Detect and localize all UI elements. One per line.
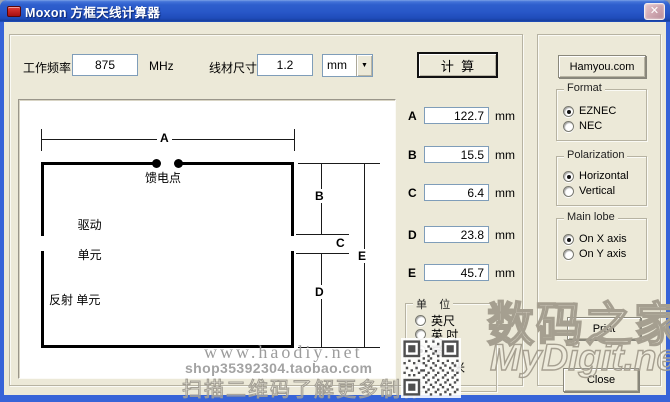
result-unit-d: mm [495,228,515,242]
result-label-c: C [408,186,417,200]
unit-option-label: 毫 米 [431,342,458,359]
format-option-nec[interactable]: NEC [563,120,602,132]
polarization-option-horizontal[interactable]: Horizontal [563,170,629,182]
result-label-d: D [408,228,417,242]
wire-size-label: 线材尺寸 [209,59,257,76]
main-lobe-option-label: On Y axis [579,248,626,260]
polarization-option-label: Horizontal [579,170,629,182]
result-input-c[interactable] [424,184,489,201]
radio-icon[interactable] [563,186,574,197]
dim-tick-a-left [41,129,42,151]
dim-label-d: D [312,285,327,299]
result-input-d[interactable] [424,226,489,243]
radio-icon[interactable] [563,249,574,260]
wire-unit-combobox[interactable]: mm ▼ [322,54,373,77]
unit-option-inch[interactable]: 英 吋 [415,326,458,343]
radio-icon[interactable] [415,362,426,373]
result-label-e: E [408,266,416,280]
driven-label-line1: 驱动 [78,218,102,232]
close-icon: ✕ [650,5,659,17]
dim-line-d [321,253,322,348]
hamyou-website-button[interactable]: Hamyou.com [558,55,646,78]
frequency-input[interactable] [72,54,138,76]
feed-dot-right [174,159,183,168]
app-window: Moxon 方框天线计算器 ✕ 工作频率 MHz 线材尺寸 mm ▼ 计 算 A [0,0,670,402]
radio-icon[interactable] [563,234,574,245]
radio-icon[interactable] [563,106,574,117]
unit-option-label: 米 [453,359,465,376]
result-label-b: B [408,148,417,162]
result-input-e[interactable] [424,264,489,281]
main-lobe-group-title: Main lobe [564,211,618,223]
driven-element-label: 驱动 单元 [51,203,102,278]
dim-tick-a-right [294,129,295,151]
antenna-diagram: A 馈电点 驱动 单元 反射 单元 [18,99,396,379]
frequency-label: 工作频率 [23,59,71,76]
wire-size-input[interactable] [257,54,313,76]
title-bar: Moxon 方框天线计算器 ✕ [0,0,670,22]
unit-option-label: 英 吋 [431,326,458,343]
chevron-down-icon: ▼ [361,62,368,69]
format-option-label: EZNEC [579,105,616,117]
result-unit-e: mm [495,266,515,280]
result-unit-b: mm [495,148,515,162]
print-button[interactable]: Print [567,317,641,340]
driven-wire-left [41,162,157,165]
frequency-unit-label: MHz [149,59,174,73]
unit-option-mm[interactable]: 毫 米 [415,342,458,359]
dim-label-b: B [312,189,327,203]
format-option-eznec[interactable]: EZNEC [563,105,616,117]
unit-group-title: 单 位 [413,296,453,312]
close-button[interactable]: Close [563,368,639,392]
format-option-label: NEC [579,120,602,132]
radio-icon[interactable] [563,121,574,132]
result-unit-c: mm [495,186,515,200]
radio-icon[interactable] [415,345,426,356]
result-label-a: A [408,109,417,123]
main-lobe-option-x[interactable]: On X axis [563,233,627,245]
unit-option-m[interactable]: 米 [415,359,465,376]
app-icon [7,6,21,17]
format-group-title: Format [564,82,605,94]
combobox-dropdown-button[interactable]: ▼ [356,55,372,76]
polarization-group-title: Polarization [564,149,627,161]
main-lobe-option-label: On X axis [579,233,627,245]
right-wire-upper [291,162,294,236]
polarization-option-vertical[interactable]: Vertical [563,185,615,197]
result-unit-a: mm [495,109,515,123]
dim-tick-gap-top [296,234,349,235]
client-area: 工作频率 MHz 线材尺寸 mm ▼ 计 算 A 馈电点 [4,22,666,395]
right-wire-lower [291,251,294,348]
window-title: Moxon 方框天线计算器 [25,2,644,21]
polarization-option-label: Vertical [579,185,615,197]
left-wire-lower [41,251,44,348]
dim-label-a: A [157,131,172,145]
feed-dot-left [152,159,161,168]
reflector-element-label: 反射 单元 [49,293,100,308]
dim-tick-bottom [298,347,380,348]
main-lobe-option-y[interactable]: On Y axis [563,248,626,260]
result-input-b[interactable] [424,146,489,163]
driven-wire-right [180,162,294,165]
window-close-button[interactable]: ✕ [644,3,665,20]
left-wire-upper [41,162,44,236]
dim-tick-gap-bottom [296,253,349,254]
result-input-a[interactable] [424,107,489,124]
wire-unit-value: mm [323,55,356,76]
feed-point-label: 馈电点 [145,171,181,186]
radio-icon[interactable] [415,329,426,340]
dim-label-e: E [355,249,369,263]
calculate-button[interactable]: 计 算 [417,52,498,78]
dim-tick-top [298,163,380,164]
radio-icon[interactable] [563,171,574,182]
radio-icon[interactable] [415,315,426,326]
reflector-wire [41,345,294,348]
dim-label-c: C [333,236,348,250]
driven-label-line2: 单元 [78,248,102,262]
